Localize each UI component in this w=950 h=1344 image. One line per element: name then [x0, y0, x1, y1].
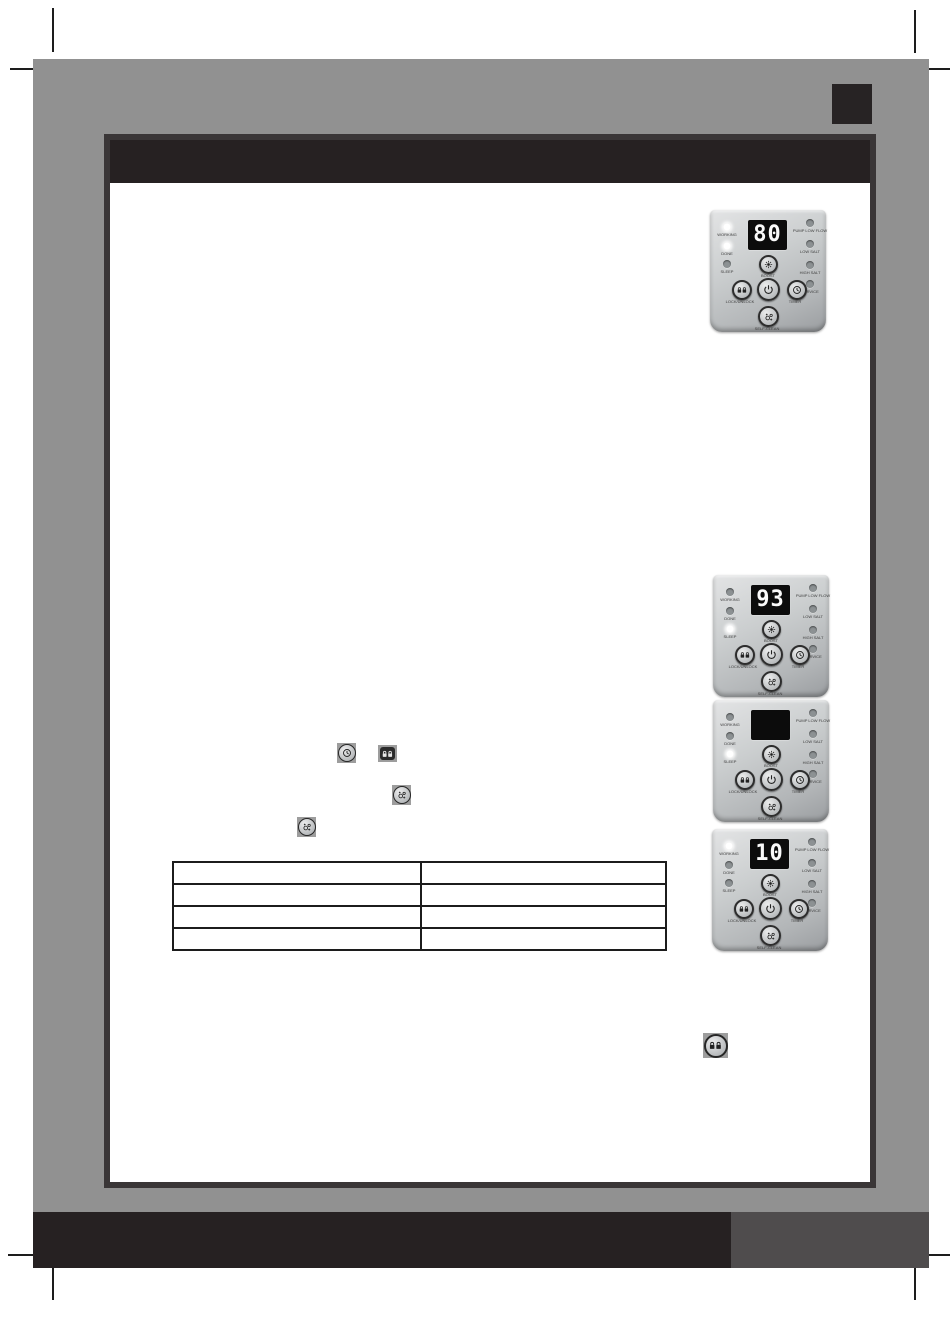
timer-button — [790, 770, 810, 790]
self-clean-button — [760, 925, 781, 946]
control-panel-photo-1: 80 WORKING DONE SLEEP PUMP LOW FLOW LOW … — [710, 210, 826, 332]
low-salt-led — [808, 859, 816, 867]
lock-unlock-button-label: LOCK/UNLOCK — [718, 299, 762, 304]
panel-photo-slot-4: 10 WORKING DONE SLEEP PUMP LOW FLOW LOW … — [712, 829, 828, 951]
lock-unlock-button — [734, 899, 754, 919]
self-clean-icon — [767, 802, 777, 812]
table-cell — [173, 928, 421, 950]
high-salt-led — [809, 626, 817, 634]
working-led-label: WORKING — [720, 722, 740, 727]
self-clean-button-label: SELF-CLEAN — [748, 691, 792, 696]
self-clean-button — [758, 306, 779, 327]
self-clean-button — [761, 796, 782, 817]
boost-button — [762, 745, 781, 764]
lock-unlock-button-label: LOCK/UNLOCK — [721, 789, 765, 794]
pump-low-flow-led — [806, 219, 814, 227]
self-clean-button-label: SELF-CLEAN — [747, 945, 791, 950]
done-led — [725, 861, 733, 869]
service-led — [809, 645, 817, 653]
power-button — [760, 768, 783, 791]
low-salt-led — [809, 605, 817, 613]
sleep-led-item: SLEEP — [715, 625, 745, 639]
sleep-led — [726, 625, 734, 633]
led-display: 80 — [748, 220, 787, 250]
pump-low-flow-led — [809, 709, 817, 717]
power-button — [760, 643, 783, 666]
lock-unlock-icon — [740, 651, 750, 659]
panel-photo-slot-2: 93 WORKING DONE SLEEP PUMP LOW FLOW LOW … — [713, 575, 829, 697]
table-row — [173, 928, 666, 950]
boost-button — [761, 874, 780, 893]
high-salt-led-label: HIGH SALT — [803, 635, 824, 640]
section-header-bar — [110, 140, 870, 183]
working-led — [726, 588, 734, 596]
table-cell — [173, 862, 421, 884]
high-salt-led-item: HIGH SALT — [798, 626, 828, 640]
power-icon — [766, 774, 777, 785]
self-clean-icon — [764, 312, 774, 322]
table-row — [173, 884, 666, 906]
high-salt-led — [808, 880, 816, 888]
boost-button — [759, 255, 778, 274]
timer-button — [789, 899, 809, 919]
footer-black-band — [33, 1212, 731, 1268]
lock-unlock-icon — [739, 905, 749, 913]
boost-icon — [767, 625, 776, 634]
boost-icon — [767, 750, 776, 759]
sleep-led-item: SLEEP — [712, 260, 742, 274]
timer-button — [787, 280, 807, 300]
lock-unlock-button-label: LOCK/UNLOCK — [721, 664, 765, 669]
low-salt-led-item: LOW SALT — [798, 605, 828, 619]
table-cell — [173, 906, 421, 928]
table-cell — [421, 928, 666, 950]
working-led-label: WORKING — [719, 851, 739, 856]
pump-low-flow-led-label: PUMP LOW FLOW — [796, 718, 830, 723]
sleep-led-label: SLEEP — [721, 269, 734, 274]
pump-low-flow-led — [808, 838, 816, 846]
self-clean-icon — [767, 677, 777, 687]
boost-icon — [766, 879, 775, 888]
self-clean-icon — [298, 818, 316, 836]
clock-icon — [795, 775, 805, 785]
working-led-item: WORKING — [715, 713, 745, 727]
done-led-item: DONE — [715, 607, 745, 621]
timer-button-label: TIMER — [773, 299, 817, 304]
low-salt-led — [809, 730, 817, 738]
pump-low-flow-led-item: PUMP LOW FLOW — [798, 709, 828, 723]
done-led-label: DONE — [724, 741, 736, 746]
pump-low-flow-led — [809, 584, 817, 592]
lock-unlock-button — [732, 280, 752, 300]
crop-mark-bottom-right-horizontal — [929, 1254, 950, 1256]
service-led — [806, 280, 814, 288]
self-clean-icon — [766, 931, 776, 941]
done-led — [726, 732, 734, 740]
self-clean-button — [761, 671, 782, 692]
control-panel-photo-3: WORKING DONE SLEEP PUMP LOW FLOW LOW SAL… — [713, 700, 829, 822]
done-led-label: DONE — [721, 251, 733, 256]
pump-low-flow-led-label: PUMP LOW FLOW — [795, 847, 829, 852]
display-digits: 93 — [756, 589, 785, 611]
high-salt-led — [809, 751, 817, 759]
timer-button-label: TIMER — [776, 664, 820, 669]
working-led — [723, 223, 731, 231]
lock-unlock-icon — [737, 286, 747, 294]
panel-photo-slot-3: WORKING DONE SLEEP PUMP LOW FLOW LOW SAL… — [713, 700, 829, 822]
pump-low-flow-led-label: PUMP LOW FLOW — [796, 593, 830, 598]
sleep-led — [726, 750, 734, 758]
low-salt-led-label: LOW SALT — [800, 249, 820, 254]
self-clean-button-icon — [392, 785, 411, 805]
table-cell — [421, 862, 666, 884]
low-salt-led-label: LOW SALT — [803, 614, 823, 619]
low-salt-led-item: LOW SALT — [795, 240, 825, 254]
high-salt-led-item: HIGH SALT — [797, 880, 827, 894]
low-salt-led — [806, 240, 814, 248]
timer-button-icon — [337, 743, 356, 763]
sleep-led-item: SLEEP — [715, 750, 745, 764]
clock-icon — [794, 904, 804, 914]
low-salt-led-item: LOW SALT — [797, 859, 827, 873]
done-led-item: DONE — [714, 861, 744, 875]
crop-mark-top-left-vertical — [52, 8, 54, 52]
table-cell — [421, 906, 666, 928]
done-led-item: DONE — [712, 242, 742, 256]
working-led-label: WORKING — [720, 597, 740, 602]
power-icon — [765, 903, 776, 914]
done-led-label: DONE — [724, 616, 736, 621]
done-led — [723, 242, 731, 250]
high-salt-led-item: HIGH SALT — [798, 751, 828, 765]
boost-button — [762, 620, 781, 639]
timer-button-label: TIMER — [776, 789, 820, 794]
boost-icon — [764, 260, 773, 269]
power-button — [757, 278, 780, 301]
power-button — [759, 897, 782, 920]
crop-mark-top-right-vertical — [914, 10, 916, 53]
led-display: 93 — [751, 585, 790, 615]
lock-unlock-button-icon — [378, 745, 397, 762]
crop-mark-bottom-left-vertical — [52, 1268, 54, 1300]
self-clean-button-label: SELF-CLEAN — [748, 816, 792, 821]
self-clean-button-label: SELF-CLEAN — [745, 326, 789, 331]
clock-icon — [792, 285, 802, 295]
working-led — [726, 713, 734, 721]
timer-button-label: TIMER — [775, 918, 819, 923]
power-icon — [766, 649, 777, 660]
table-cell — [173, 884, 421, 906]
lock-unlock-button-label: LOCK/UNLOCK — [720, 918, 764, 923]
page-number-block — [832, 84, 872, 124]
sleep-led-label: SLEEP — [723, 888, 736, 893]
service-led — [809, 770, 817, 778]
done-led-label: DONE — [723, 870, 735, 875]
clock-icon — [338, 744, 356, 762]
footer-bar — [33, 1212, 929, 1268]
power-icon — [763, 284, 774, 295]
lock-unlock-button-icon — [703, 1033, 728, 1058]
high-salt-led-label: HIGH SALT — [802, 889, 823, 894]
display-digits: 80 — [753, 224, 782, 246]
table-row — [173, 906, 666, 928]
led-display — [751, 710, 790, 740]
self-clean-icon — [393, 786, 411, 804]
working-led-item: WORKING — [714, 842, 744, 856]
control-panel-photo-2: 93 WORKING DONE SLEEP PUMP LOW FLOW LOW … — [713, 575, 829, 697]
working-led-label: WORKING — [717, 232, 737, 237]
control-panel-photo-4: 10 WORKING DONE SLEEP PUMP LOW FLOW LOW … — [712, 829, 828, 951]
lock-unlock-button — [735, 770, 755, 790]
sleep-led-label: SLEEP — [724, 634, 737, 639]
done-led-item: DONE — [715, 732, 745, 746]
high-salt-led — [806, 261, 814, 269]
crop-mark-bottom-right-vertical — [914, 1268, 916, 1300]
table-row — [173, 862, 666, 884]
crop-mark-bottom-left-horizontal — [8, 1254, 33, 1256]
service-led — [808, 899, 816, 907]
pump-low-flow-led-label: PUMP LOW FLOW — [793, 228, 827, 233]
panel-photo-slot-1: 80 WORKING DONE SLEEP PUMP LOW FLOW LOW … — [710, 210, 826, 332]
lock-unlock-icon — [740, 776, 750, 784]
high-salt-led-label: HIGH SALT — [803, 760, 824, 765]
pump-low-flow-led-item: PUMP LOW FLOW — [795, 219, 825, 233]
low-salt-led-label: LOW SALT — [803, 739, 823, 744]
blank-table — [172, 861, 667, 951]
done-led — [726, 607, 734, 615]
working-led — [725, 842, 733, 850]
lock-unlock-button — [735, 645, 755, 665]
self-clean-button-icon — [297, 817, 316, 837]
lock-unlock-icon — [380, 747, 395, 760]
pump-low-flow-led-item: PUMP LOW FLOW — [797, 838, 827, 852]
pump-low-flow-led-item: PUMP LOW FLOW — [798, 584, 828, 598]
sleep-led-label: SLEEP — [724, 759, 737, 764]
table-cell — [421, 884, 666, 906]
lock-unlock-icon — [704, 1034, 728, 1058]
low-salt-led-label: LOW SALT — [802, 868, 822, 873]
timer-button — [790, 645, 810, 665]
working-led-item: WORKING — [712, 223, 742, 237]
clock-icon — [795, 650, 805, 660]
display-digits: 10 — [755, 843, 784, 865]
sleep-led — [723, 260, 731, 268]
high-salt-led-item: HIGH SALT — [795, 261, 825, 275]
high-salt-led-label: HIGH SALT — [800, 270, 821, 275]
footer-accent-band — [731, 1212, 929, 1268]
working-led-item: WORKING — [715, 588, 745, 602]
led-display: 10 — [750, 839, 789, 869]
sleep-led-item: SLEEP — [714, 879, 744, 893]
sleep-led — [725, 879, 733, 887]
scanned-manual-page: 80 WORKING DONE SLEEP PUMP LOW FLOW LOW … — [0, 0, 950, 1344]
low-salt-led-item: LOW SALT — [798, 730, 828, 744]
